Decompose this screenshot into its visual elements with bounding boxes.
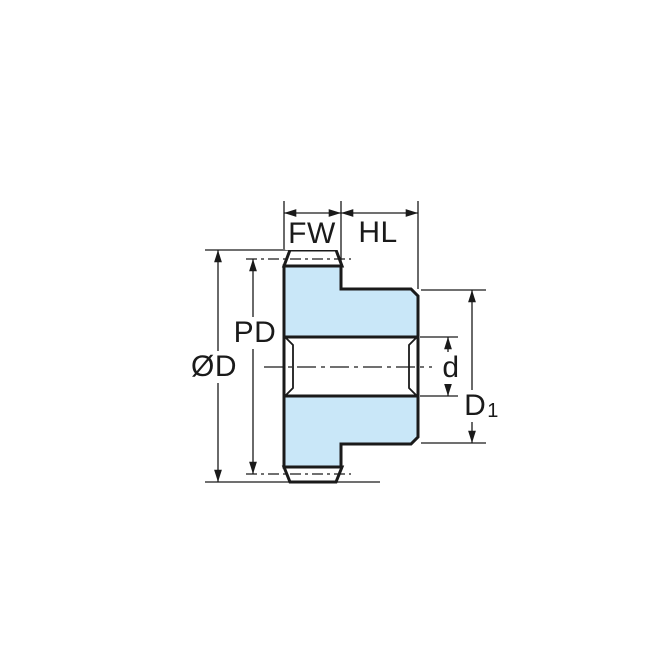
od-label: ØD [188, 351, 240, 383]
gear-body-upper-section [284, 266, 418, 337]
fw-label: FW [285, 218, 339, 250]
d-label: d [439, 352, 462, 384]
d1-label-subscript: 1 [487, 400, 499, 422]
gear-dimension-diagram: FW HL PD ØD d D1 [0, 0, 670, 670]
d1-label-main: D [464, 389, 486, 422]
hl-label: HL [355, 217, 400, 249]
d1-label: D1 [461, 390, 501, 422]
gear-tooth-top [284, 250, 342, 266]
pd-label: PD [231, 317, 280, 349]
gear-body-lower-section [284, 396, 418, 467]
gear-section-drawing [0, 0, 670, 670]
